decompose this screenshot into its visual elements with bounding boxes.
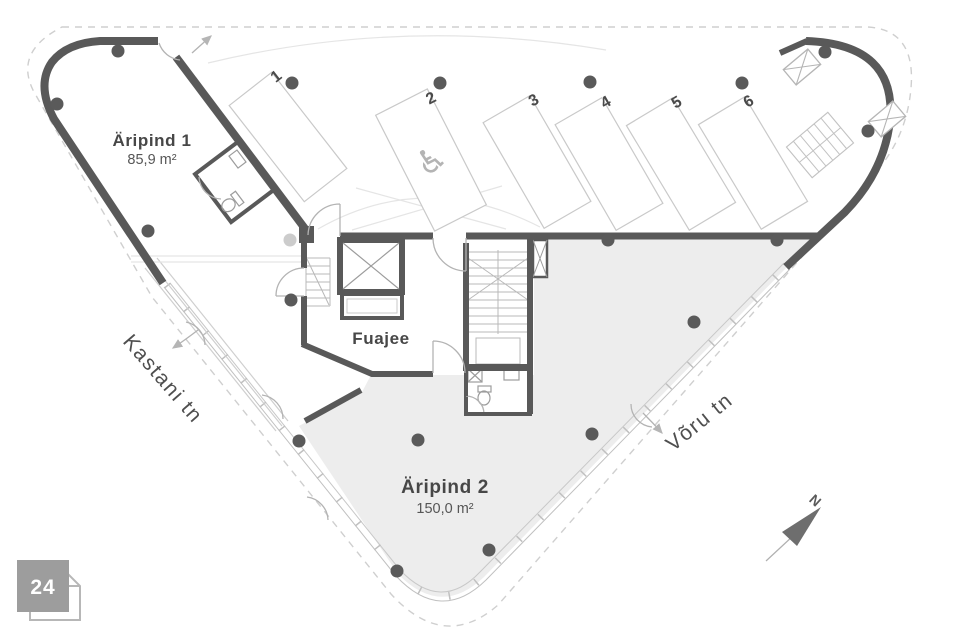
sheet-number: 24 <box>30 576 55 599</box>
stair-landing <box>476 338 520 364</box>
elevator-shaft <box>340 240 402 292</box>
north-label: N <box>806 491 824 510</box>
exit-arrow-kastani <box>173 330 198 348</box>
column-dot <box>285 294 298 307</box>
column-dot <box>862 125 875 138</box>
column-dot <box>434 77 447 90</box>
room-label-unit2: Äripind 2 <box>401 477 489 498</box>
street-label-voru: Võru tn <box>662 388 738 456</box>
main-staircase <box>468 250 528 364</box>
wc-room-core <box>466 366 530 414</box>
sheet-number-badge: 24 <box>17 560 80 620</box>
wc-room-walls <box>195 142 274 222</box>
duct-shaft <box>533 240 547 277</box>
column-dot <box>286 77 299 90</box>
column-dot <box>586 428 599 441</box>
column-dot <box>736 77 749 90</box>
floor-plan-page: 12♿3456 <box>0 0 960 640</box>
entrance-ramp <box>131 256 303 431</box>
wc-room-unit1 <box>195 142 274 222</box>
column-dot <box>293 435 306 448</box>
exit-arrow-north <box>192 36 211 53</box>
wall-stub <box>780 41 807 53</box>
column-dot <box>142 225 155 238</box>
north-arrow: N <box>766 491 824 561</box>
room-area-unit2: 150,0 m² <box>416 501 473 517</box>
room-label-unit1: Äripind 1 <box>112 131 191 150</box>
exit-arrow-voru <box>643 413 662 433</box>
lobby-steps <box>306 258 330 306</box>
column-dot <box>584 76 597 89</box>
bike-rack-grid <box>786 112 853 177</box>
parking-stalls: 12♿3456 <box>228 67 812 231</box>
lobby-south-wall <box>302 344 433 374</box>
column-dot <box>51 98 64 111</box>
column-dot <box>483 544 496 557</box>
parking-stall-2: 2♿ <box>376 87 490 231</box>
storage-room <box>342 294 402 318</box>
street-label-kastani: Kastani tn <box>118 330 207 428</box>
column-dot <box>819 46 832 59</box>
column-dot <box>412 434 425 447</box>
column-light <box>284 234 297 247</box>
column-dot <box>391 565 404 578</box>
room-label-lobby: Fuajee <box>352 329 409 348</box>
hatch-box-a <box>783 49 820 85</box>
column-dot <box>602 234 615 247</box>
column-dot <box>771 234 784 247</box>
room-area-unit1: 85,9 m² <box>127 152 176 168</box>
column-dot <box>112 45 125 58</box>
column-dot <box>688 316 701 329</box>
floor-plan-drawing: 12♿3456 <box>0 0 960 640</box>
